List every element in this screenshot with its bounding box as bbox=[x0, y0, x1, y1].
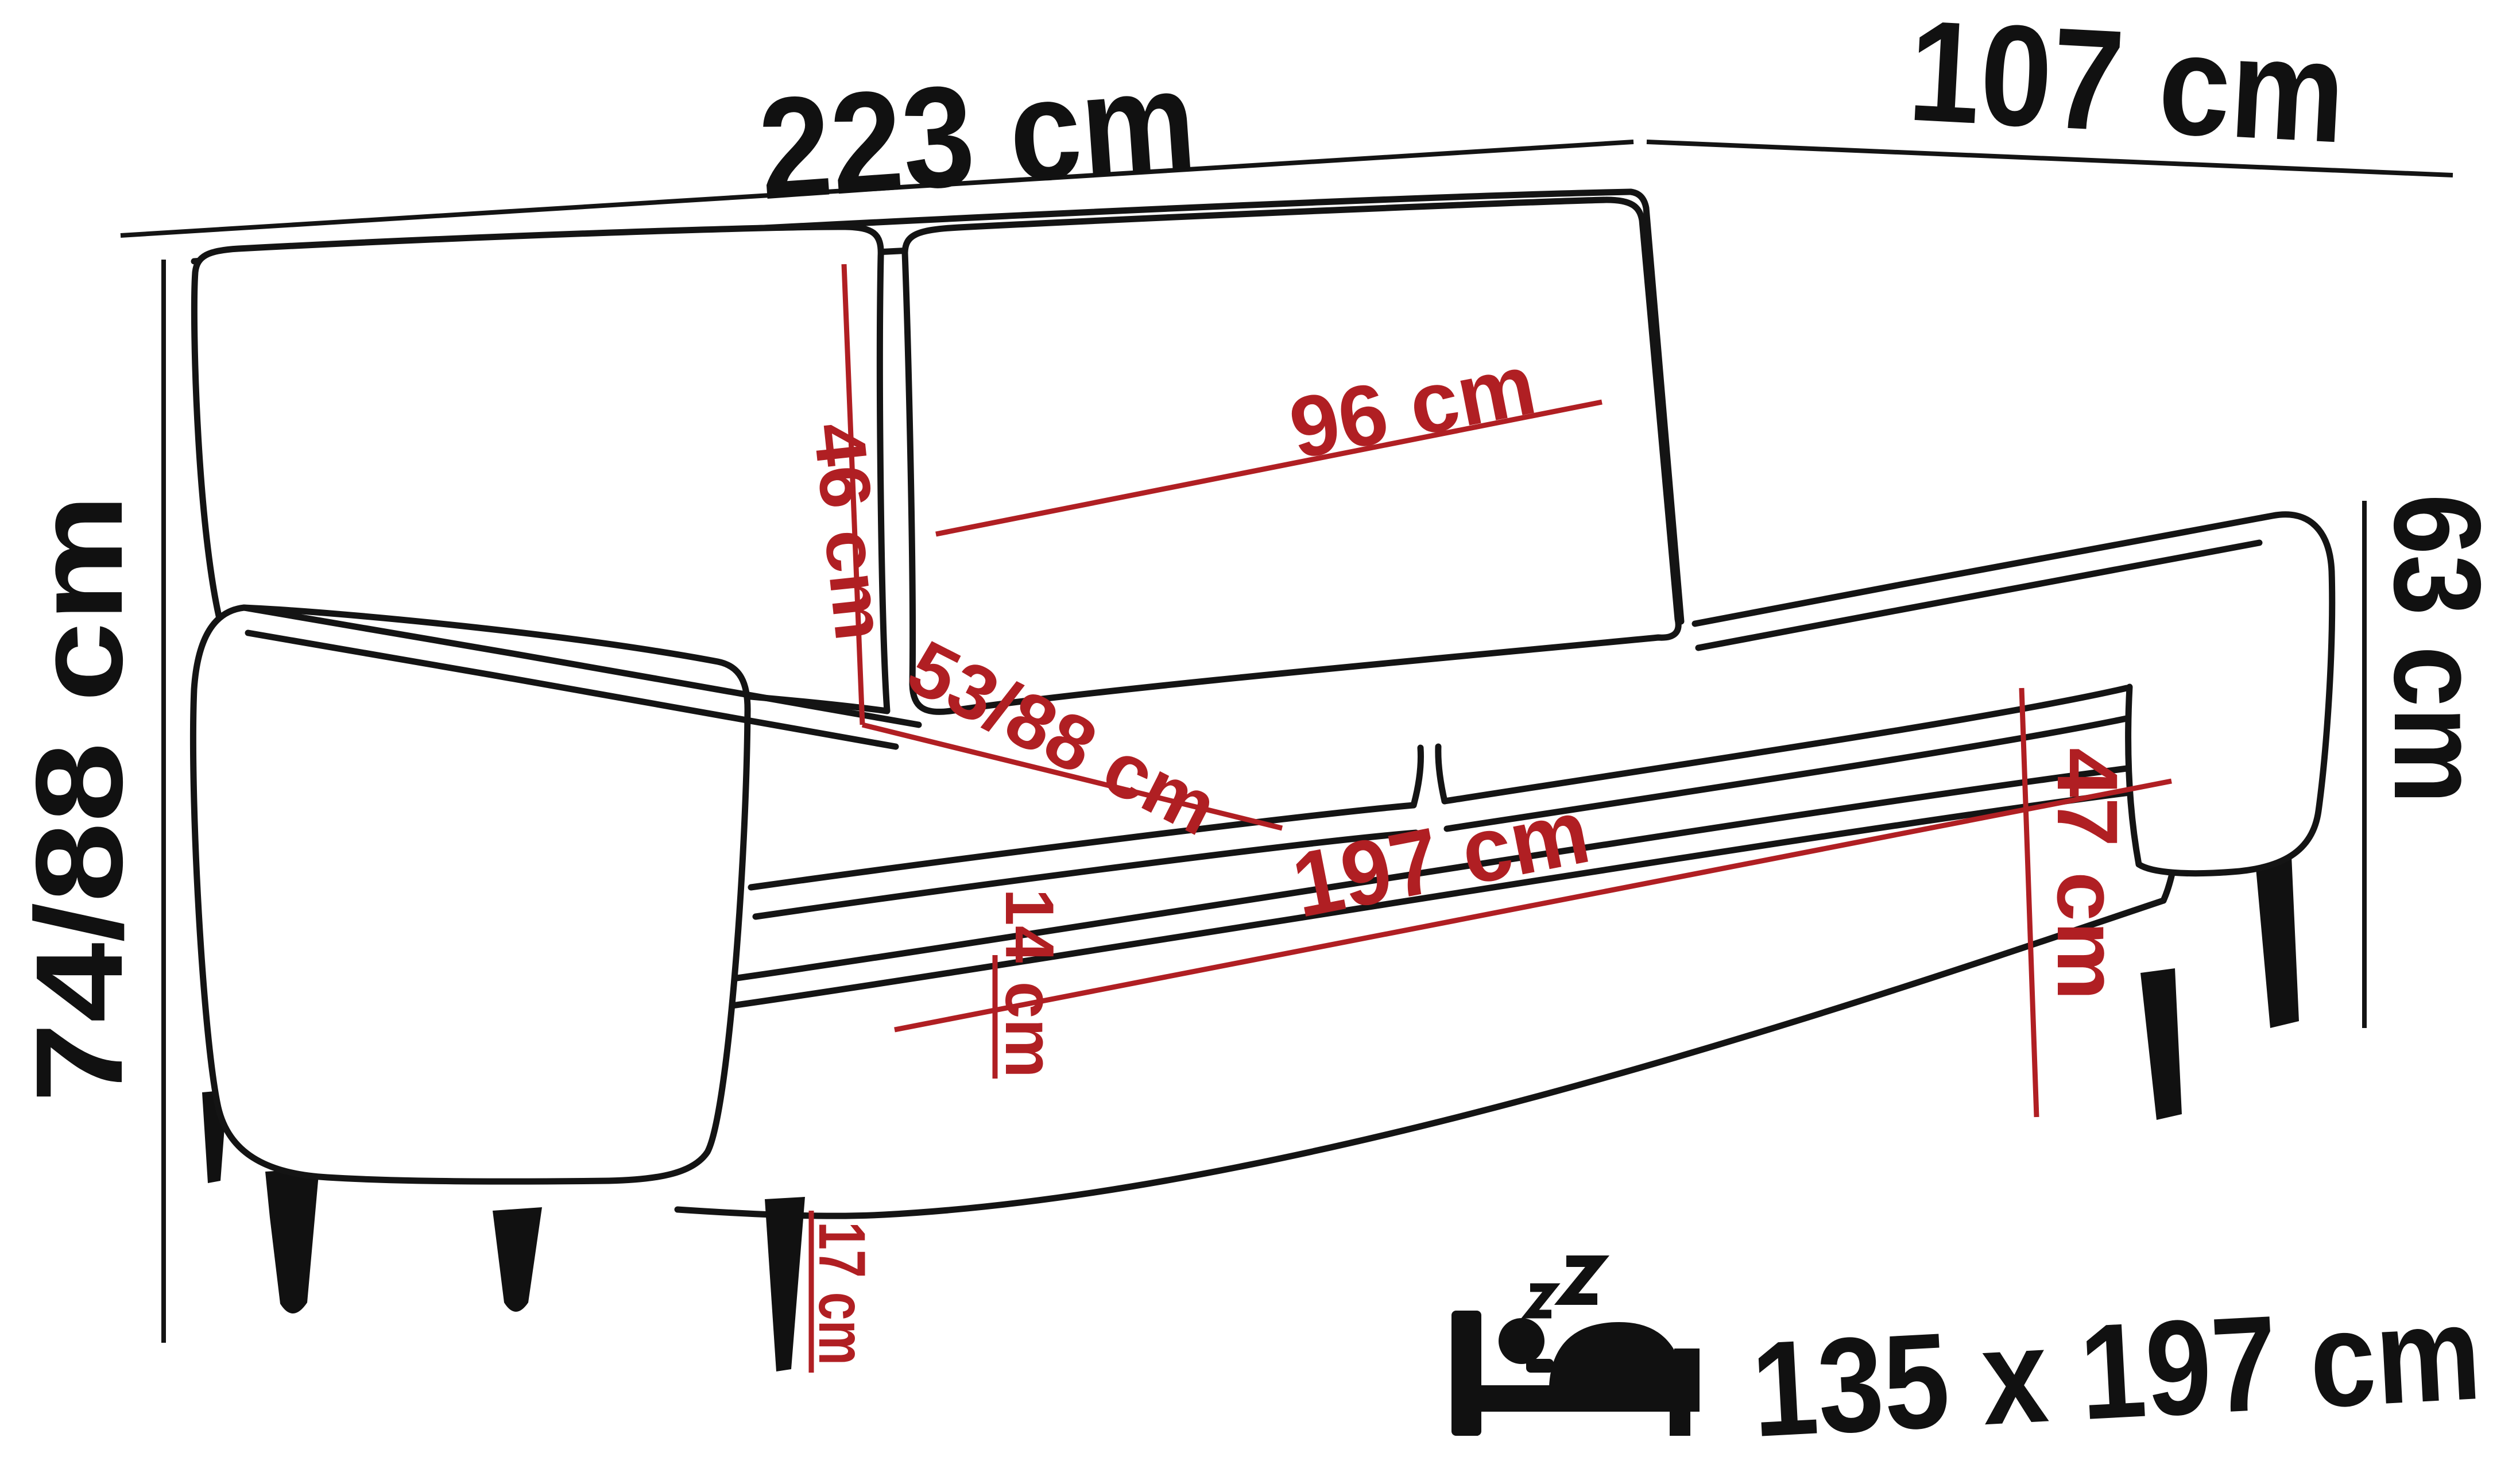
bed-footboard bbox=[1674, 1349, 1700, 1412]
bed-foot-right bbox=[1670, 1411, 1690, 1436]
leg-height-label: 17 cm bbox=[805, 1222, 878, 1365]
back-cushion-right bbox=[905, 200, 1678, 712]
side-height-label: 63 cm bbox=[2368, 494, 2507, 804]
bed-foot-left bbox=[1457, 1411, 1478, 1436]
total-width-label: 223 cm bbox=[754, 39, 1201, 229]
sleeper-blanket bbox=[1549, 1322, 1685, 1386]
sleeper-arm bbox=[1526, 1359, 1554, 1373]
sleep-z-small-icon bbox=[1530, 1288, 1551, 1314]
total-depth-label: 107 cm bbox=[1905, 0, 2349, 173]
bed-platform bbox=[1451, 1385, 1700, 1412]
seat-width-label: 197 cm bbox=[1284, 779, 1597, 937]
bed-sleep-icon bbox=[1451, 1261, 1700, 1436]
sofa-dimension-diagram: 223 cm 107 cm 74/88 cm 63 cm 46 cm 96 cm… bbox=[0, 0, 2520, 1476]
total-height-label: 74/88 cm bbox=[10, 494, 148, 1103]
sofa-line-drawing: 223 cm 107 cm 74/88 cm 63 cm 46 cm 96 cm… bbox=[0, 0, 2520, 1476]
base-height-label: 14 cm bbox=[991, 888, 1068, 1078]
sleep-z-large-icon bbox=[1566, 1261, 1597, 1299]
sleeper-head bbox=[1499, 1318, 1544, 1364]
seat-height-line bbox=[2022, 688, 2037, 1117]
seat-height-label: 47 cm bbox=[2039, 748, 2136, 1000]
sleeping-area-label: 135 x 197 cm bbox=[1748, 1276, 2484, 1465]
